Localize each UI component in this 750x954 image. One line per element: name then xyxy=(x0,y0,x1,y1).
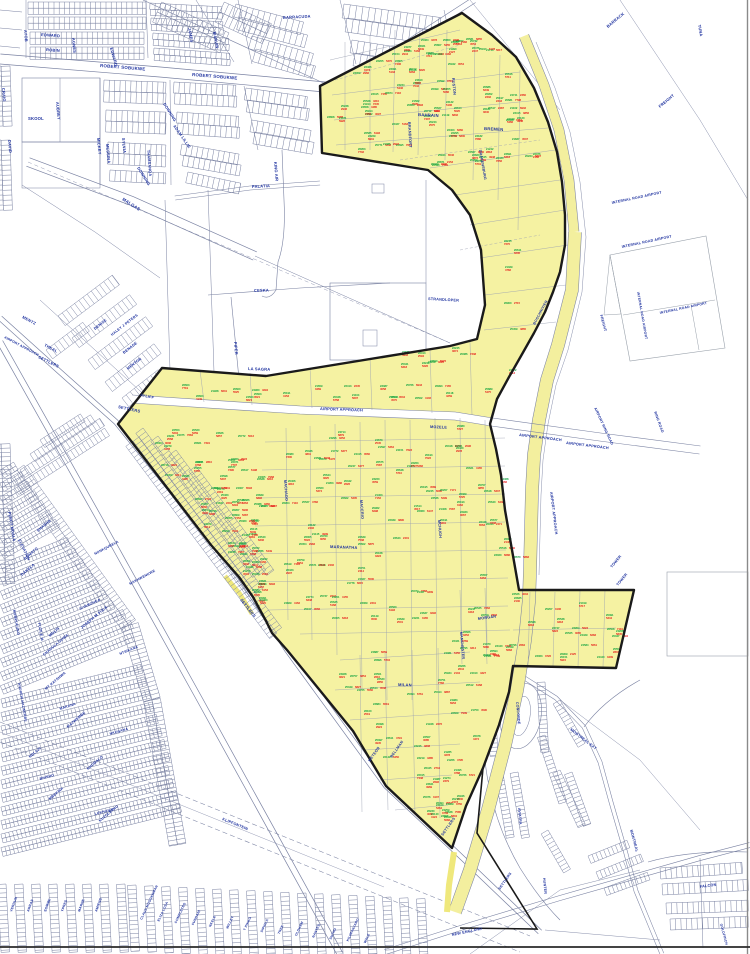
svg-text:7338: 7338 xyxy=(470,352,476,356)
svg-text:2893: 2893 xyxy=(417,103,423,107)
svg-text:4517: 4517 xyxy=(414,507,420,511)
svg-text:5875: 5875 xyxy=(368,542,374,546)
svg-text:5446: 5446 xyxy=(397,86,403,90)
svg-text:5344: 5344 xyxy=(606,616,612,620)
svg-text:3560: 3560 xyxy=(364,452,370,456)
svg-text:2471: 2471 xyxy=(496,522,502,526)
svg-text:7118: 7118 xyxy=(395,91,401,95)
svg-text:7453: 7453 xyxy=(235,516,241,520)
svg-text:4025: 4025 xyxy=(221,496,227,500)
svg-text:5466: 5466 xyxy=(507,120,513,124)
svg-text:6932: 6932 xyxy=(520,106,526,110)
svg-text:25516: 25516 xyxy=(499,546,507,550)
svg-text:7087: 7087 xyxy=(449,507,455,511)
svg-text:2850: 2850 xyxy=(377,680,383,684)
svg-text:7448: 7448 xyxy=(417,776,423,780)
svg-text:5020: 5020 xyxy=(260,601,266,605)
svg-text:2401: 2401 xyxy=(403,536,409,540)
svg-text:2332: 2332 xyxy=(485,95,491,99)
svg-text:26502: 26502 xyxy=(415,396,423,400)
svg-text:CESKA: CESKA xyxy=(254,287,269,293)
svg-text:5680: 5680 xyxy=(483,645,489,649)
svg-text:5683: 5683 xyxy=(506,648,512,652)
svg-text:24829: 24829 xyxy=(284,601,292,605)
svg-text:21351: 21351 xyxy=(455,444,463,448)
svg-text:23440: 23440 xyxy=(495,644,503,648)
svg-text:4165: 4165 xyxy=(476,466,482,470)
svg-text:5857: 5857 xyxy=(216,434,222,438)
svg-text:21145: 21145 xyxy=(312,532,320,536)
svg-text:20671: 20671 xyxy=(309,563,317,567)
svg-text:26293: 26293 xyxy=(222,529,230,533)
svg-text:25076: 25076 xyxy=(423,795,431,799)
svg-text:24581: 24581 xyxy=(314,456,322,460)
svg-text:21928: 21928 xyxy=(211,389,219,393)
svg-text:2296: 2296 xyxy=(453,38,459,42)
svg-text:2245: 2245 xyxy=(354,384,360,388)
svg-text:4001: 4001 xyxy=(221,486,227,490)
svg-text:4149: 4149 xyxy=(196,397,202,401)
svg-text:3162: 3162 xyxy=(457,503,463,507)
svg-text:3050: 3050 xyxy=(320,537,326,541)
svg-text:4478: 4478 xyxy=(164,447,170,451)
svg-text:26697: 26697 xyxy=(195,497,203,501)
svg-text:24221: 24221 xyxy=(412,616,420,620)
svg-text:23643: 23643 xyxy=(393,536,401,540)
svg-text:6519: 6519 xyxy=(383,702,389,706)
svg-text:21778: 21778 xyxy=(347,581,355,585)
svg-text:ROBIN: ROBIN xyxy=(46,47,60,53)
svg-text:7391: 7391 xyxy=(204,441,210,445)
svg-text:4570: 4570 xyxy=(391,398,397,402)
svg-text:25154: 25154 xyxy=(392,52,400,56)
svg-text:20245: 20245 xyxy=(426,489,434,493)
svg-text:3986: 3986 xyxy=(336,481,342,485)
svg-text:5305: 5305 xyxy=(351,496,357,500)
svg-text:7300: 7300 xyxy=(286,455,292,459)
svg-text:22567: 22567 xyxy=(468,150,476,154)
svg-text:6931: 6931 xyxy=(368,137,374,141)
svg-text:25943: 25943 xyxy=(438,153,446,157)
svg-text:3418: 3418 xyxy=(468,610,474,614)
svg-text:7390: 7390 xyxy=(228,468,234,472)
svg-text:25850: 25850 xyxy=(443,38,451,42)
svg-text:20525: 20525 xyxy=(565,631,573,635)
svg-text:23526: 23526 xyxy=(512,592,520,596)
svg-text:6621: 6621 xyxy=(246,398,252,402)
svg-text:20766: 20766 xyxy=(459,773,467,777)
svg-text:7270: 7270 xyxy=(504,242,510,246)
svg-text:23611: 23611 xyxy=(386,736,394,740)
svg-text:3292: 3292 xyxy=(430,611,436,615)
svg-text:5364: 5364 xyxy=(388,445,394,449)
svg-text:MOZELE: MOZELE xyxy=(430,425,447,430)
svg-text:2339: 2339 xyxy=(404,48,410,52)
svg-text:24201: 24201 xyxy=(332,595,340,599)
svg-text:24741: 24741 xyxy=(510,93,518,97)
svg-text:2818: 2818 xyxy=(486,150,492,154)
svg-text:6206: 6206 xyxy=(514,251,520,255)
svg-text:6659: 6659 xyxy=(381,650,387,654)
svg-text:25580: 25580 xyxy=(252,588,260,592)
svg-text:2501: 2501 xyxy=(397,620,403,624)
svg-text:2414: 2414 xyxy=(358,569,364,573)
svg-text:4102: 4102 xyxy=(425,396,431,400)
svg-text:4153: 4153 xyxy=(283,394,289,398)
svg-text:3314: 3314 xyxy=(470,646,476,650)
svg-text:3318: 3318 xyxy=(557,620,563,624)
svg-text:6563: 6563 xyxy=(479,523,485,527)
svg-text:6283: 6283 xyxy=(590,633,596,637)
svg-text:3808: 3808 xyxy=(424,744,430,748)
svg-text:5475: 5475 xyxy=(485,390,491,394)
svg-text:2924: 2924 xyxy=(376,725,382,729)
svg-text:3252: 3252 xyxy=(339,436,345,440)
svg-text:26445: 26445 xyxy=(424,766,432,770)
svg-text:22231: 22231 xyxy=(196,460,204,464)
svg-text:25207: 25207 xyxy=(545,607,553,611)
svg-text:5370: 5370 xyxy=(386,59,392,63)
svg-text:24415: 24415 xyxy=(354,452,362,456)
svg-text:6976: 6976 xyxy=(440,359,446,363)
svg-text:MILAN: MILAN xyxy=(398,682,412,687)
svg-text:5661: 5661 xyxy=(591,643,597,647)
svg-text:22638: 22638 xyxy=(257,477,265,481)
svg-text:23884: 23884 xyxy=(373,702,381,706)
svg-text:2581: 2581 xyxy=(262,572,268,576)
svg-text:5259: 5259 xyxy=(192,431,198,435)
svg-text:2402: 2402 xyxy=(308,526,314,530)
svg-text:23593: 23593 xyxy=(430,359,438,363)
svg-text:24440: 24440 xyxy=(597,655,605,659)
svg-text:20354: 20354 xyxy=(299,542,307,546)
svg-text:3323: 3323 xyxy=(375,554,381,558)
svg-text:25737: 25737 xyxy=(320,594,328,598)
svg-text:3211: 3211 xyxy=(175,473,181,477)
svg-text:5449: 5449 xyxy=(266,549,272,553)
svg-text:20086: 20086 xyxy=(460,352,468,356)
svg-text:5906: 5906 xyxy=(242,508,248,512)
svg-text:5704: 5704 xyxy=(384,658,390,662)
svg-text:24081: 24081 xyxy=(444,651,452,655)
svg-text:7238: 7238 xyxy=(490,521,496,525)
svg-text:23536: 23536 xyxy=(431,496,439,500)
svg-text:5800: 5800 xyxy=(459,134,465,138)
svg-text:7087: 7087 xyxy=(376,463,382,467)
svg-text:4559: 4559 xyxy=(372,480,378,484)
svg-text:6943: 6943 xyxy=(416,383,422,387)
svg-text:4537: 4537 xyxy=(522,137,528,141)
svg-text:6546: 6546 xyxy=(448,153,454,157)
svg-text:PALATIA: PALATIA xyxy=(252,183,270,189)
svg-text:6686: 6686 xyxy=(504,553,510,557)
svg-text:25528: 25528 xyxy=(363,99,371,103)
svg-text:5710: 5710 xyxy=(396,471,402,475)
svg-text:21948: 21948 xyxy=(426,722,434,726)
svg-text:4589: 4589 xyxy=(430,485,436,489)
svg-text:7707: 7707 xyxy=(231,463,237,467)
svg-text:5525: 5525 xyxy=(233,390,239,394)
svg-text:5337: 5337 xyxy=(220,477,226,481)
svg-text:26954: 26954 xyxy=(282,501,290,505)
svg-text:MARANATHA: MARANATHA xyxy=(330,544,358,550)
svg-text:25349: 25349 xyxy=(345,685,353,689)
svg-text:2684: 2684 xyxy=(519,643,525,647)
svg-text:23359: 23359 xyxy=(353,71,361,75)
svg-text:2125: 2125 xyxy=(570,652,576,656)
svg-text:2360: 2360 xyxy=(520,93,526,97)
svg-text:26896: 26896 xyxy=(374,658,382,662)
svg-text:25942: 25942 xyxy=(448,62,456,66)
svg-text:6377: 6377 xyxy=(341,449,347,453)
svg-text:2626: 2626 xyxy=(344,482,350,486)
svg-text:6249: 6249 xyxy=(483,88,489,92)
svg-text:3625: 3625 xyxy=(323,476,329,480)
svg-text:3067: 3067 xyxy=(460,513,466,517)
svg-text:6765: 6765 xyxy=(194,469,200,473)
svg-text:20850: 20850 xyxy=(407,103,415,107)
svg-text:2944: 2944 xyxy=(402,52,408,56)
svg-text:5133: 5133 xyxy=(389,70,395,74)
svg-text:3521: 3521 xyxy=(254,395,260,399)
svg-text:24307: 24307 xyxy=(236,486,244,490)
svg-text:20005: 20005 xyxy=(332,616,340,620)
svg-text:2644: 2644 xyxy=(458,667,464,671)
svg-text:22618: 22618 xyxy=(484,489,492,493)
svg-text:5178: 5178 xyxy=(489,47,495,51)
svg-text:5522: 5522 xyxy=(304,538,310,542)
svg-text:22609: 22609 xyxy=(451,711,459,715)
svg-text:7904: 7904 xyxy=(232,529,238,533)
svg-text:25055: 25055 xyxy=(225,516,233,520)
svg-text:7494: 7494 xyxy=(294,562,300,566)
svg-text:3749: 3749 xyxy=(442,811,448,815)
svg-text:21750: 21750 xyxy=(471,708,479,712)
svg-text:5962: 5962 xyxy=(415,81,421,85)
svg-text:23954: 23954 xyxy=(572,626,580,630)
svg-text:3173: 3173 xyxy=(364,68,370,72)
svg-text:7585: 7585 xyxy=(455,810,461,814)
svg-text:25771: 25771 xyxy=(375,143,383,147)
svg-text:3107: 3107 xyxy=(433,795,439,799)
svg-text:22039: 22039 xyxy=(388,518,396,522)
svg-text:21408: 21408 xyxy=(439,507,447,511)
svg-text:26619: 26619 xyxy=(284,562,292,566)
svg-text:3854: 3854 xyxy=(360,674,366,678)
svg-text:23315: 23315 xyxy=(371,92,379,96)
svg-text:26662: 26662 xyxy=(341,496,349,500)
svg-text:7782: 7782 xyxy=(438,681,444,685)
svg-text:25772: 25772 xyxy=(238,434,246,438)
svg-text:5204: 5204 xyxy=(172,431,178,435)
svg-text:3890: 3890 xyxy=(398,518,404,522)
svg-text:4182: 4182 xyxy=(445,52,451,56)
svg-text:3924: 3924 xyxy=(171,463,177,467)
svg-text:24561: 24561 xyxy=(484,654,492,658)
svg-text:20621: 20621 xyxy=(466,466,474,470)
svg-text:5255: 5255 xyxy=(444,43,450,47)
svg-text:5374: 5374 xyxy=(316,489,322,493)
svg-text:4124: 4124 xyxy=(431,815,437,819)
svg-text:6318: 6318 xyxy=(401,365,407,369)
svg-text:7686: 7686 xyxy=(475,137,481,141)
svg-text:6693: 6693 xyxy=(269,582,275,586)
svg-text:5727: 5727 xyxy=(457,427,463,431)
svg-text:3425: 3425 xyxy=(182,477,188,481)
svg-text:4155: 4155 xyxy=(342,595,348,599)
svg-text:3530: 3530 xyxy=(371,617,377,621)
svg-text:24969: 24969 xyxy=(446,802,454,806)
svg-text:6505: 6505 xyxy=(254,593,260,597)
svg-text:21953: 21953 xyxy=(326,481,334,485)
svg-text:20224: 20224 xyxy=(525,154,533,158)
svg-text:2343: 2343 xyxy=(496,99,502,103)
svg-text:23069: 23069 xyxy=(360,601,368,605)
svg-text:5938: 5938 xyxy=(324,456,330,460)
svg-text:26900: 26900 xyxy=(504,301,512,305)
svg-text:24075: 24075 xyxy=(177,433,185,437)
svg-text:6620: 6620 xyxy=(419,68,425,72)
svg-text:5725: 5725 xyxy=(459,495,465,499)
svg-text:25459: 25459 xyxy=(510,327,518,331)
svg-text:2734: 2734 xyxy=(434,766,440,770)
svg-text:24521: 24521 xyxy=(211,486,219,490)
svg-text:3363: 3363 xyxy=(242,501,248,505)
svg-text:23245: 23245 xyxy=(414,744,422,748)
svg-text:6263: 6263 xyxy=(409,70,415,74)
svg-text:26821: 26821 xyxy=(194,441,202,445)
svg-text:6828: 6828 xyxy=(209,512,215,516)
svg-text:6348: 6348 xyxy=(306,598,312,602)
svg-text:7256: 7256 xyxy=(365,112,371,116)
svg-text:23415: 23415 xyxy=(513,111,521,115)
svg-text:5337: 5337 xyxy=(494,489,500,493)
svg-text:4554: 4554 xyxy=(470,42,476,46)
svg-text:21597: 21597 xyxy=(378,445,386,449)
svg-text:6336: 6336 xyxy=(258,538,264,542)
svg-text:21847: 21847 xyxy=(216,501,224,505)
svg-text:6615: 6615 xyxy=(357,581,363,585)
svg-text:25088: 25088 xyxy=(254,502,262,506)
svg-text:2402: 2402 xyxy=(328,563,334,567)
svg-text:5226: 5226 xyxy=(422,364,428,368)
svg-text:7988: 7988 xyxy=(252,549,258,553)
svg-text:5287: 5287 xyxy=(242,513,248,517)
svg-text:5915: 5915 xyxy=(560,658,566,662)
svg-text:2379: 2379 xyxy=(443,779,449,783)
svg-text:7262: 7262 xyxy=(484,606,490,610)
svg-text:3106: 3106 xyxy=(555,607,561,611)
svg-text:4474: 4474 xyxy=(473,737,479,741)
svg-text:22427: 22427 xyxy=(392,122,400,126)
svg-text:24010: 24010 xyxy=(470,671,478,675)
svg-text:5823: 5823 xyxy=(552,629,558,633)
svg-text:6477: 6477 xyxy=(358,464,364,468)
svg-text:4294: 4294 xyxy=(262,388,268,392)
svg-text:4795: 4795 xyxy=(457,758,463,762)
svg-text:4910: 4910 xyxy=(242,544,248,548)
svg-text:4034: 4034 xyxy=(522,592,528,596)
svg-text:6721: 6721 xyxy=(469,773,475,777)
svg-text:7538: 7538 xyxy=(358,538,364,542)
svg-text:2692: 2692 xyxy=(433,780,439,784)
svg-text:2715: 2715 xyxy=(514,301,520,305)
svg-text:21385: 21385 xyxy=(383,142,391,146)
svg-text:6832: 6832 xyxy=(452,113,458,117)
svg-text:5318: 5318 xyxy=(504,155,510,159)
svg-text:6892: 6892 xyxy=(256,496,262,500)
svg-text:25807: 25807 xyxy=(434,43,442,47)
svg-text:3566: 3566 xyxy=(314,607,320,611)
svg-text:2331: 2331 xyxy=(370,601,376,605)
svg-text:2545: 2545 xyxy=(375,441,381,445)
svg-text:6153: 6153 xyxy=(262,588,268,592)
svg-text:3469: 3469 xyxy=(315,387,321,391)
svg-text:5450: 5450 xyxy=(454,651,460,655)
svg-text:21772: 21772 xyxy=(331,449,339,453)
svg-text:6631: 6631 xyxy=(221,389,227,393)
svg-text:2724: 2724 xyxy=(205,497,211,501)
svg-text:5020: 5020 xyxy=(454,109,460,113)
svg-text:3674: 3674 xyxy=(452,349,458,353)
svg-text:3621: 3621 xyxy=(339,675,345,679)
svg-text:21437: 21437 xyxy=(417,590,425,594)
svg-text:2153: 2153 xyxy=(447,160,453,164)
svg-text:5614: 5614 xyxy=(204,525,210,529)
svg-text:6168: 6168 xyxy=(476,683,482,687)
svg-text:6147: 6147 xyxy=(427,509,433,513)
svg-text:2023: 2023 xyxy=(241,457,247,461)
svg-text:7152: 7152 xyxy=(375,496,381,500)
svg-text:5883: 5883 xyxy=(523,555,529,559)
svg-text:6827: 6827 xyxy=(355,685,361,689)
svg-text:2096: 2096 xyxy=(465,444,471,448)
svg-text:6294: 6294 xyxy=(232,503,238,507)
svg-text:21238: 21238 xyxy=(228,550,236,554)
svg-text:7719: 7719 xyxy=(182,386,188,390)
svg-text:LA SAGRA: LA SAGRA xyxy=(248,366,271,372)
svg-text:22592: 22592 xyxy=(437,79,445,83)
svg-text:2247: 2247 xyxy=(472,49,478,53)
svg-text:2699: 2699 xyxy=(249,519,255,523)
svg-text:7116: 7116 xyxy=(292,501,298,505)
svg-text:3409: 3409 xyxy=(607,655,613,659)
svg-text:24960: 24960 xyxy=(252,388,260,392)
svg-text:5926: 5926 xyxy=(339,119,345,123)
svg-text:3640: 3640 xyxy=(483,110,489,114)
svg-text:26957: 26957 xyxy=(232,508,240,512)
svg-text:2575: 2575 xyxy=(429,123,435,127)
svg-text:2182: 2182 xyxy=(461,40,467,44)
svg-text:26993: 26993 xyxy=(435,384,443,388)
svg-text:4616: 4616 xyxy=(288,482,294,486)
svg-text:4210: 4210 xyxy=(373,99,379,103)
svg-text:3165: 3165 xyxy=(422,616,428,620)
svg-text:22304: 22304 xyxy=(155,441,163,445)
svg-text:5941: 5941 xyxy=(252,563,258,567)
svg-text:3534: 3534 xyxy=(399,395,405,399)
svg-text:6717: 6717 xyxy=(579,604,585,608)
svg-text:4385: 4385 xyxy=(427,756,433,760)
svg-text:26874: 26874 xyxy=(385,91,393,95)
svg-text:5845: 5845 xyxy=(616,632,622,636)
svg-text:4948: 4948 xyxy=(489,155,495,159)
svg-text:7406: 7406 xyxy=(395,62,401,66)
svg-text:24459: 24459 xyxy=(165,473,173,477)
svg-text:6453: 6453 xyxy=(480,576,486,580)
svg-text:4097: 4097 xyxy=(375,112,381,116)
svg-text:6298: 6298 xyxy=(372,509,378,513)
